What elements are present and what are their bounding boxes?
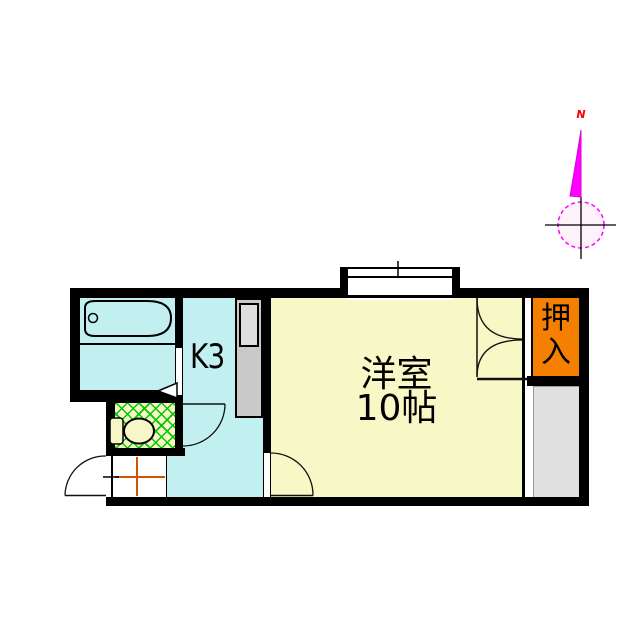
room-bathroom-floor [80,298,175,390]
wall-closet-track-line [522,298,525,497]
floor-plan: K3 洋室 10帖 押入 N [0,0,640,640]
bathroom-door-opening [175,348,183,395]
storage-area [533,386,580,498]
wall-right [579,288,589,506]
wall-toilet-right [175,390,183,456]
main-room-label-line2: 10帖 [271,392,522,426]
north-label: N [571,108,591,121]
kitchen-counter [235,298,263,418]
wall-bath-kitchen [175,298,183,348]
kitchen-door-opening [263,453,271,497]
wall-bathroom-bottom [70,390,183,402]
main-room-label: 洋室 10帖 [271,358,522,426]
kitchen-sink [239,303,259,347]
window-mid-line [348,276,452,278]
wall-toilet-bottom [106,448,185,456]
wall-closet-bottom [527,376,579,386]
window-jamb-left [340,267,348,298]
entrance-area [114,456,167,497]
compass-north-needle [570,130,581,197]
window-sill-line [348,295,452,298]
window-jamb-right [452,267,460,298]
closet-label: 押入 [539,302,573,370]
main-room-label-line1: 洋室 [271,358,522,392]
kitchen-label: K3 [190,337,224,377]
wall-kitchen-mainroom [263,298,271,453]
compass-circle [558,202,604,248]
wall-top-right [460,288,579,298]
entrance-door-jamb [111,456,113,497]
entrance-door-arc [65,456,106,496]
wall-top-left [70,288,340,298]
wall-bottom [106,497,589,506]
wall-toilet-left [106,396,114,456]
room-toilet-floor [114,402,176,449]
wall-left [70,288,80,402]
